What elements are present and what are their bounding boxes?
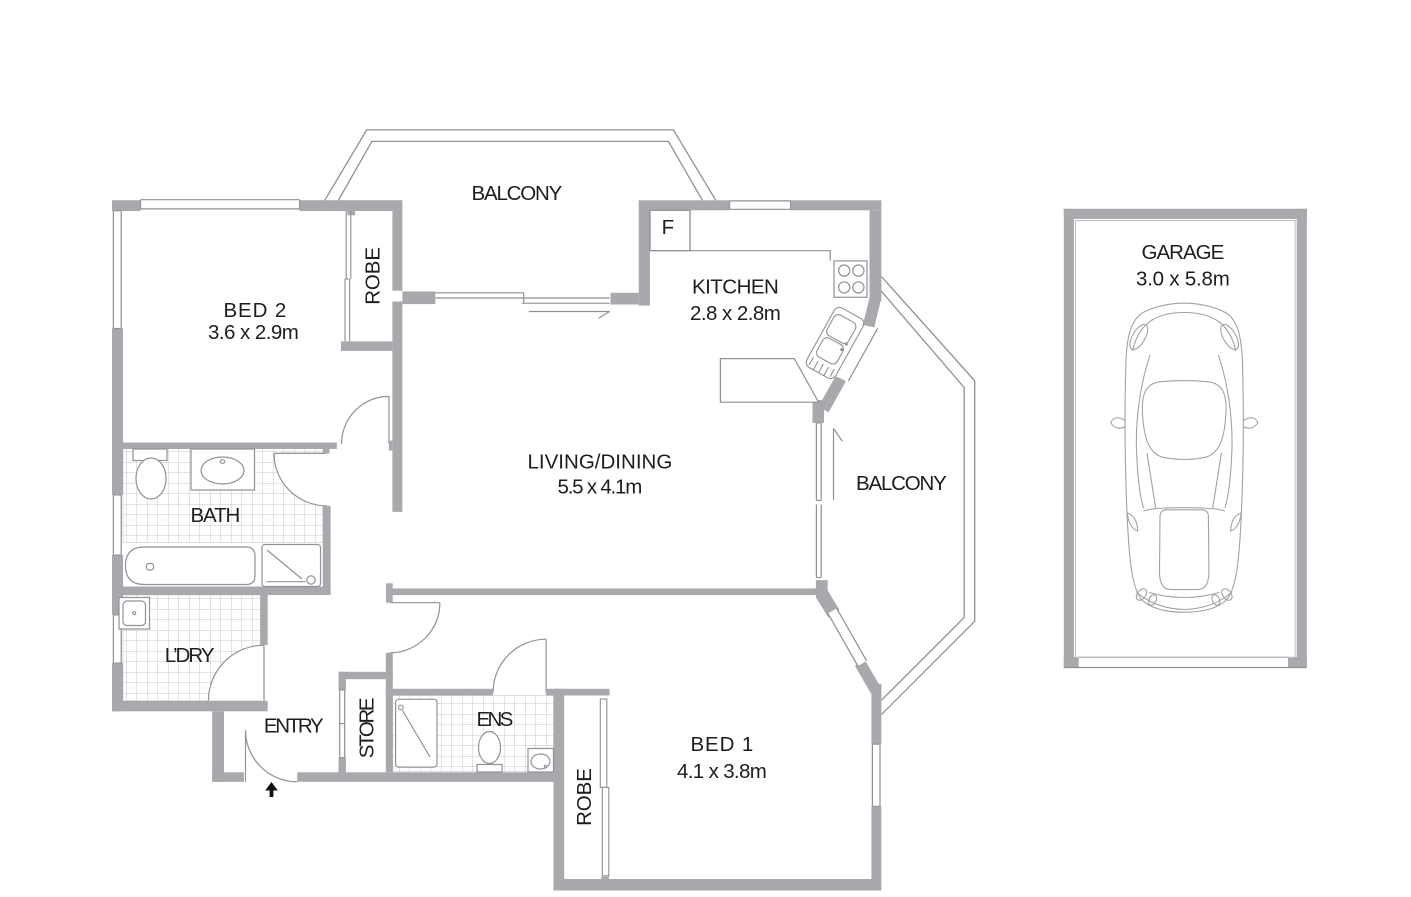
svg-text:STORE: STORE bbox=[356, 697, 379, 758]
svg-text:BATH: BATH bbox=[191, 504, 241, 527]
svg-text:4.1 x 3.8m: 4.1 x 3.8m bbox=[677, 760, 767, 783]
svg-text:3.0 x 5.8m: 3.0 x 5.8m bbox=[1136, 268, 1230, 291]
svg-text:BED 1: BED 1 bbox=[691, 733, 754, 756]
svg-text:ROBE: ROBE bbox=[573, 768, 596, 826]
svg-text:KITCHEN: KITCHEN bbox=[692, 276, 779, 299]
svg-text:L’DRY: L’DRY bbox=[165, 644, 215, 667]
svg-text:BALCONY: BALCONY bbox=[856, 472, 947, 495]
svg-text:5.5 x 4.1m: 5.5 x 4.1m bbox=[558, 476, 643, 499]
svg-text:2.8 x 2.8m: 2.8 x 2.8m bbox=[690, 302, 781, 325]
svg-text:ENS: ENS bbox=[477, 708, 514, 731]
svg-text:3.6 x 2.9m: 3.6 x 2.9m bbox=[208, 321, 299, 344]
svg-text:LIVING/DINING: LIVING/DINING bbox=[528, 451, 673, 474]
svg-text:BED 2: BED 2 bbox=[224, 299, 287, 322]
svg-text:GARAGE: GARAGE bbox=[1142, 241, 1225, 264]
svg-text:F: F bbox=[662, 216, 675, 239]
svg-text:BALCONY: BALCONY bbox=[472, 182, 563, 205]
svg-text:ROBE: ROBE bbox=[362, 247, 385, 305]
svg-text:ENTRY: ENTRY bbox=[264, 715, 324, 738]
